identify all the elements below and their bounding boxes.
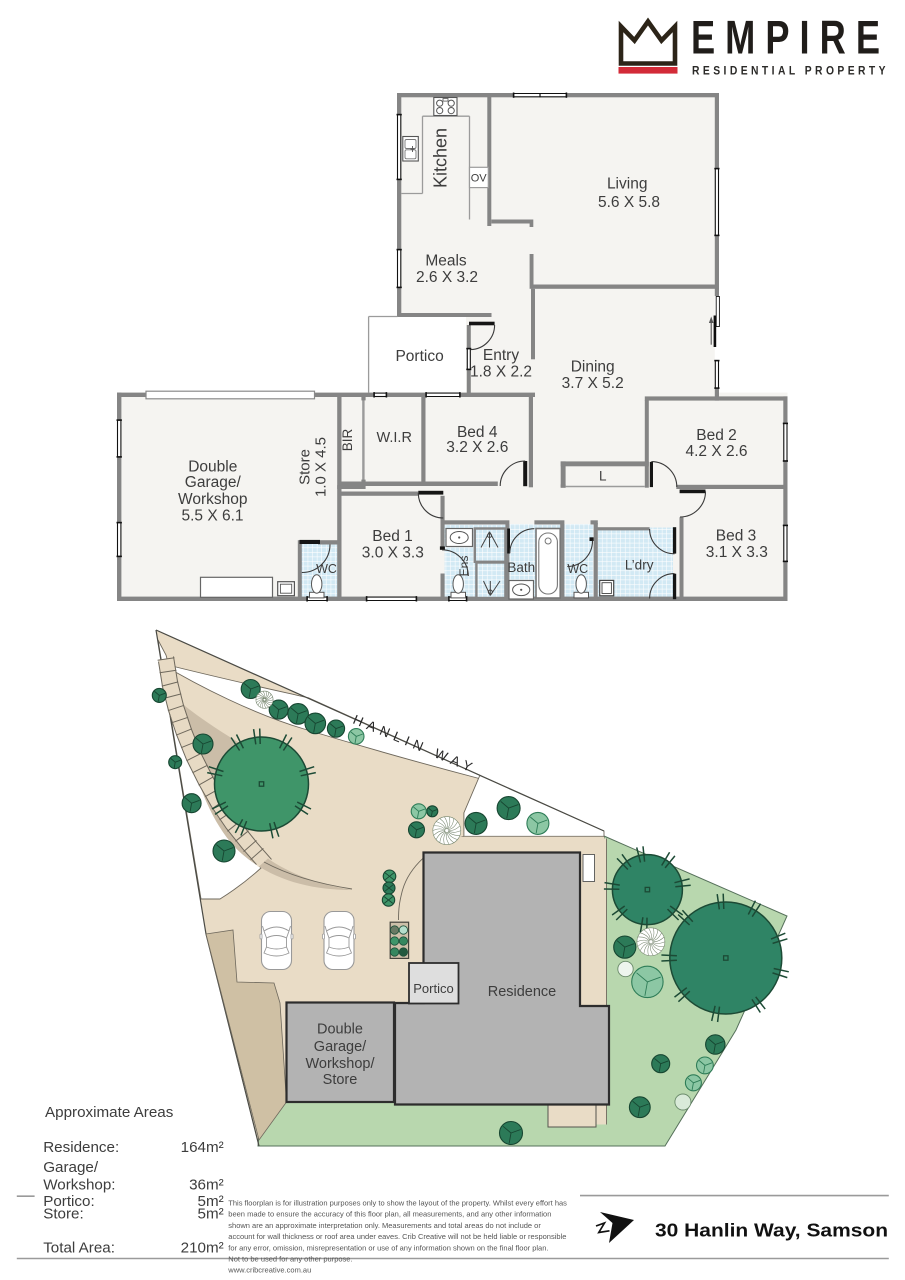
- svg-text:3.1 X 3.3: 3.1 X 3.3: [706, 544, 768, 561]
- svg-text:EMPIRE: EMPIRE: [691, 11, 890, 64]
- svg-text:OV: OV: [471, 172, 488, 184]
- svg-text:30 Hanlin Way, Samson: 30 Hanlin Way, Samson: [655, 1221, 888, 1241]
- svg-text:been made to ensure the accura: been made to ensure the accuracy of this…: [228, 1210, 551, 1219]
- svg-text:Store:: Store:: [43, 1206, 84, 1223]
- svg-text:for any error, omission, misre: for any error, omission, misrepresentati…: [228, 1243, 548, 1252]
- svg-text:This floorplan is for illustra: This floorplan is for illustration purpo…: [228, 1199, 567, 1208]
- svg-text:Residence: Residence: [488, 984, 557, 1000]
- svg-text:210m²: 210m²: [181, 1240, 224, 1257]
- svg-text:3.2 X 2.6: 3.2 X 2.6: [446, 439, 508, 456]
- svg-text:W.I.R: W.I.R: [376, 430, 411, 446]
- svg-text:Garage/: Garage/: [314, 1039, 367, 1055]
- svg-text:Bath: Bath: [507, 560, 535, 575]
- svg-text:Total Area:: Total Area:: [43, 1240, 115, 1257]
- svg-text:1.8 X 2.2: 1.8 X 2.2: [470, 364, 532, 381]
- svg-text:36m²: 36m²: [189, 1177, 224, 1194]
- svg-text:5.6 X 5.8: 5.6 X 5.8: [598, 194, 660, 211]
- svg-text:Workshop:: Workshop:: [43, 1177, 115, 1194]
- svg-text:RESIDENTIAL PROPERTY: RESIDENTIAL PROPERTY: [692, 64, 889, 78]
- svg-text:Portico: Portico: [395, 348, 443, 365]
- svg-text:4.2 X 2.6: 4.2 X 2.6: [685, 443, 747, 460]
- svg-text:Dining: Dining: [571, 359, 615, 376]
- svg-text:Not to be used for any other p: Not to be used for any other purpose.: [228, 1255, 352, 1264]
- svg-text:Bed 1: Bed 1: [372, 528, 413, 545]
- svg-text:164m²: 164m²: [181, 1139, 224, 1156]
- svg-text:Portico: Portico: [413, 981, 453, 996]
- svg-text:Entry: Entry: [483, 347, 519, 364]
- svg-text:BIR: BIR: [340, 429, 355, 452]
- svg-text:5m²: 5m²: [198, 1206, 224, 1223]
- svg-text:3.0 X 3.3: 3.0 X 3.3: [362, 544, 424, 561]
- svg-text:Approximate Areas: Approximate Areas: [45, 1104, 174, 1121]
- svg-text:Workshop: Workshop: [178, 491, 248, 508]
- svg-text:Living: Living: [607, 176, 648, 193]
- svg-text:Bed 3: Bed 3: [716, 528, 757, 545]
- svg-text:1.0 X 4.5: 1.0 X 4.5: [313, 437, 330, 497]
- svg-text:2.6 X 3.2: 2.6 X 3.2: [416, 269, 478, 286]
- svg-text:Meals: Meals: [425, 253, 467, 270]
- svg-text:L’dry: L’dry: [625, 558, 654, 573]
- svg-text:WC: WC: [316, 562, 337, 576]
- svg-text:Garage/: Garage/: [43, 1159, 99, 1176]
- svg-text:Bed 2: Bed 2: [696, 427, 737, 444]
- svg-text:shown are an approximate inter: shown are an approximate interpretation …: [228, 1221, 541, 1230]
- svg-text:Store: Store: [297, 449, 314, 485]
- svg-text:Workshop/: Workshop/: [305, 1056, 375, 1072]
- svg-text:Double: Double: [317, 1022, 363, 1038]
- svg-text:account for wall thickness or: account for wall thickness or roof area …: [228, 1232, 566, 1241]
- svg-text:Store: Store: [323, 1072, 358, 1088]
- svg-text:Double: Double: [188, 459, 237, 476]
- svg-text:www.cribcreative.com.au: www.cribcreative.com.au: [227, 1266, 311, 1275]
- svg-text:Garage/: Garage/: [185, 474, 242, 491]
- svg-text:5.5 X 6.1: 5.5 X 6.1: [181, 508, 243, 525]
- svg-text:WC: WC: [567, 562, 588, 576]
- svg-text:Kitchen: Kitchen: [431, 128, 451, 188]
- svg-text:Residence:: Residence:: [43, 1139, 119, 1156]
- svg-text:3.7 X 5.2: 3.7 X 5.2: [562, 375, 624, 392]
- svg-text:Ens: Ens: [457, 556, 471, 577]
- svg-text:L: L: [599, 469, 607, 484]
